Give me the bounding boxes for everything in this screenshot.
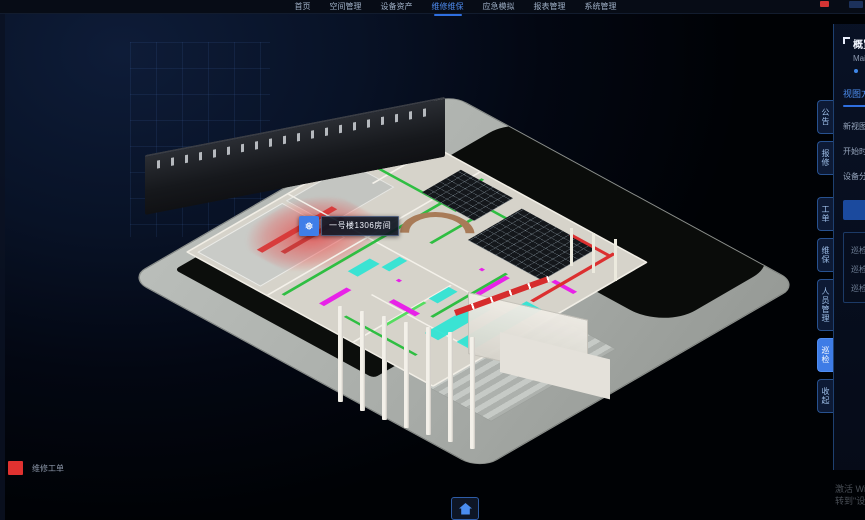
nav-item-system-management[interactable]: 系统管理: [585, 0, 617, 14]
room-tooltip[interactable]: ❅ 一号楼1306房间: [299, 216, 399, 236]
nav-item-maintenance[interactable]: 维修维保: [432, 0, 464, 14]
watermark-line2: 转到"设置"以激活 Windows。: [835, 495, 865, 507]
panel-list-item[interactable]: 巡检人员: [851, 283, 865, 294]
magenta-duct: [319, 287, 351, 306]
panel-header: 概览 Main: [843, 36, 865, 73]
panel-list-item[interactable]: 巡检路线: [851, 264, 865, 275]
panel-subtitle: Main: [853, 54, 865, 63]
panel-title: 概览: [853, 36, 865, 51]
panel-row[interactable]: 设备分布: [843, 171, 865, 182]
panel-row[interactable]: 新视图层: [843, 121, 865, 132]
inspection-panel: 概览 Main 视图方案 新视图层 开始时间 设备分布 查看详情 巡检点位 巡检…: [833, 24, 865, 470]
cyan-glass-floor: [348, 258, 380, 276]
dot-icon: [854, 69, 858, 73]
legend-color-swatch: [8, 461, 23, 475]
side-tab-rail: 公告 报修 工单 维保 人员管理 巡检 收起: [817, 100, 833, 420]
side-tab-repair-report[interactable]: 报修: [817, 141, 833, 175]
cyan-glass-floor: [382, 257, 408, 272]
nav-item-report-management[interactable]: 报表管理: [534, 0, 566, 14]
magenta-duct: [479, 268, 485, 272]
corner-indicator: [849, 1, 863, 8]
notification-dot: [820, 1, 829, 7]
panel-tab-underline: [843, 105, 865, 107]
cyan-glass-floor: [429, 287, 458, 303]
side-tab-maintenance[interactable]: 维保: [817, 238, 833, 272]
side-tab-collapse[interactable]: 收起: [817, 379, 833, 413]
room-tooltip-label: 一号楼1306房间: [321, 216, 399, 236]
top-navbar: 首页 空间管理 设备资产 维修维保 应急模拟 报表管理 系统管理: [0, 0, 865, 14]
panel-listbox: 巡检点位 巡检路线 巡检人员: [843, 232, 865, 303]
home-icon: [459, 503, 472, 515]
legend-label: 维修工单: [32, 463, 64, 474]
reset-view-home-button[interactable]: [451, 497, 479, 520]
side-tab-personnel[interactable]: 人员管理: [817, 279, 833, 331]
nav-item-emergency-simulation[interactable]: 应急模拟: [483, 0, 515, 14]
magenta-duct: [396, 279, 402, 283]
snowflake-icon: ❅: [299, 216, 319, 236]
bracket-icon: [843, 37, 850, 44]
nav-item-home[interactable]: 首页: [295, 0, 311, 14]
nav-item-space-management[interactable]: 空间管理: [330, 0, 362, 14]
panel-detail-button[interactable]: 查看详情: [843, 200, 865, 220]
side-tab-work-orders[interactable]: 工单: [817, 197, 833, 231]
panel-tab[interactable]: 视图方案: [843, 87, 865, 100]
watermark-line1: 激活 Windows: [835, 483, 865, 495]
nav-item-equipment-assets[interactable]: 设备资产: [381, 0, 413, 14]
legend-repair-work-order: 维修工单: [8, 461, 64, 475]
panel-row[interactable]: 开始时间: [843, 146, 865, 157]
activation-watermark: 激活 Windows 转到"设置"以激活 Windows。: [835, 483, 865, 507]
panel-list-item[interactable]: 巡检点位: [851, 245, 865, 256]
side-tab-inspection[interactable]: 巡检: [817, 338, 833, 372]
side-tab-announcements[interactable]: 公告: [817, 100, 833, 134]
model-viewport[interactable]: ❅ 一号楼1306房间: [0, 14, 865, 520]
